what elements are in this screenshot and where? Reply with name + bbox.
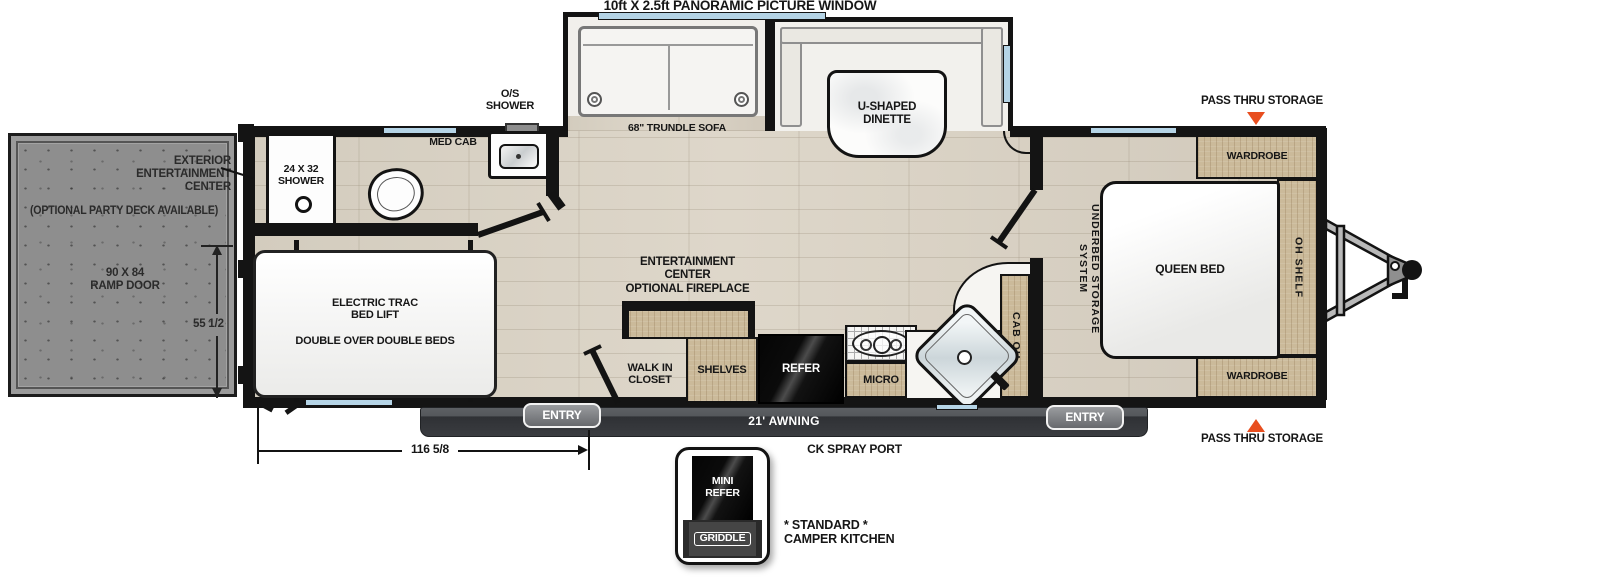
bedroom-door [999,190,1035,242]
bathroom-door [478,212,543,235]
entry-door [592,350,618,403]
wall-tip [551,193,562,208]
pointer-line [221,168,253,178]
doors-overlay [0,0,1600,577]
floorplan: 10ft X 2.5ft PANORAMIC PICTURE WINDOW EX… [0,0,1600,577]
